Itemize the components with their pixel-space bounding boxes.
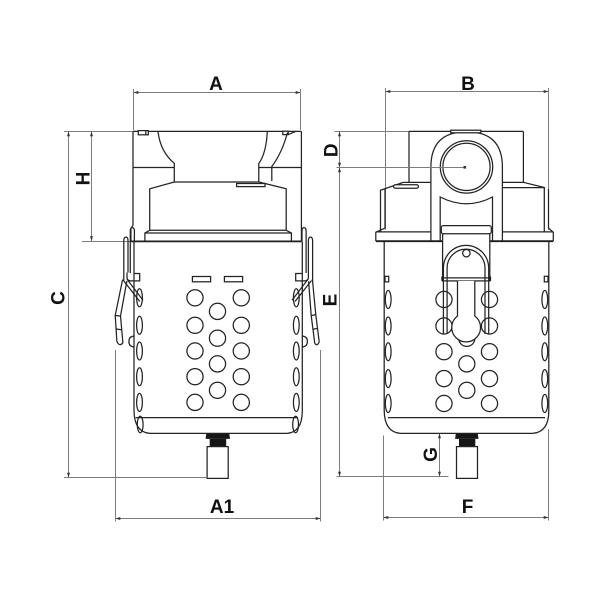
svg-text:C: C: [48, 291, 69, 305]
svg-text:H: H: [74, 172, 95, 186]
svg-text:A: A: [209, 74, 223, 95]
svg-text:B: B: [461, 74, 475, 95]
svg-text:A1: A1: [210, 497, 235, 518]
svg-text:D: D: [321, 143, 342, 157]
svg-text:E: E: [321, 294, 342, 307]
svg-text:G: G: [421, 447, 442, 462]
svg-text:F: F: [462, 497, 474, 518]
